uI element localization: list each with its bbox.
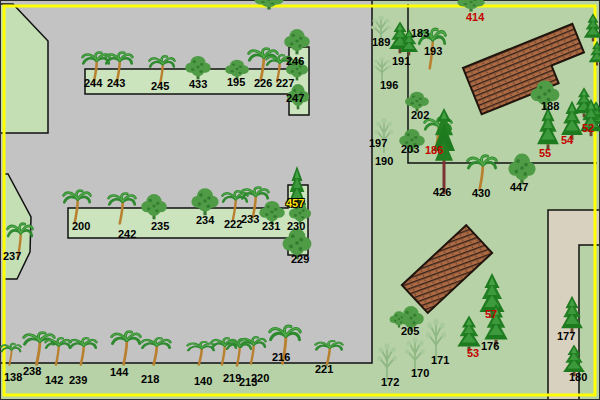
tree-number-label: 242 bbox=[118, 228, 136, 240]
tree-number-label: 447 bbox=[510, 181, 528, 193]
tree-number-label: 200 bbox=[72, 220, 90, 232]
tree-number-label: 231 bbox=[262, 220, 280, 232]
tree-number-label: 202 bbox=[411, 109, 429, 121]
tree-number-label: 457 bbox=[286, 197, 304, 209]
tree-number-label: 189 bbox=[372, 36, 390, 48]
tree-number-label: 191 bbox=[392, 55, 410, 67]
tree-number-label: 244 bbox=[84, 77, 102, 89]
map-canvas: 2442432454331952262272462472002422352342… bbox=[0, 0, 600, 400]
tree-number-label: 205 bbox=[401, 325, 419, 337]
tree-number-label: 53 bbox=[467, 347, 479, 359]
tree-number-label: 142 bbox=[45, 374, 63, 386]
tree-number-label: 230 bbox=[287, 220, 305, 232]
tree-number-label: 414 bbox=[466, 11, 484, 23]
tree-number-label: 229 bbox=[291, 253, 309, 265]
tree-number-label: 171 bbox=[431, 354, 449, 366]
tree-number-label: 227 bbox=[276, 77, 294, 89]
tree-number-label: 55 bbox=[539, 147, 551, 159]
tree-number-label: 196 bbox=[380, 79, 398, 91]
tree-number-label: 222 bbox=[224, 218, 242, 230]
tree-number-label: 183 bbox=[411, 27, 429, 39]
tree-number-label: 218 bbox=[141, 373, 159, 385]
label-layer: 2442432454331952262272462472002422352342… bbox=[0, 0, 600, 400]
tree-number-label: 186 bbox=[425, 144, 443, 156]
tree-number-label: 246 bbox=[286, 55, 304, 67]
tree-number-label: 220 bbox=[251, 372, 269, 384]
tree-number-label: 190 bbox=[375, 155, 393, 167]
tree-number-label: 221 bbox=[315, 363, 333, 375]
tree-number-label: 57 bbox=[485, 308, 497, 320]
tree-number-label: 430 bbox=[472, 187, 490, 199]
tree-number-label: 177 bbox=[557, 330, 575, 342]
tree-number-label: 172 bbox=[381, 376, 399, 388]
tree-number-label: 245 bbox=[151, 80, 169, 92]
tree-number-label: 180 bbox=[569, 371, 587, 383]
tree-number-label: 195 bbox=[227, 76, 245, 88]
tree-number-label: 234 bbox=[196, 214, 214, 226]
tree-number-label: 433 bbox=[189, 78, 207, 90]
tree-number-label: 237 bbox=[3, 250, 21, 262]
tree-number-label: 54 bbox=[561, 134, 573, 146]
tree-number-label: 197 bbox=[369, 137, 387, 149]
tree-number-label: 203 bbox=[401, 143, 419, 155]
tree-number-label: 144 bbox=[110, 366, 128, 378]
tree-number-label: 188 bbox=[541, 100, 559, 112]
tree-number-label: 247 bbox=[286, 92, 304, 104]
tree-number-label: 170 bbox=[411, 367, 429, 379]
tree-number-label: 426 bbox=[433, 186, 451, 198]
tree-number-label: 235 bbox=[151, 220, 169, 232]
tree-number-label: 176 bbox=[481, 340, 499, 352]
tree-number-label: 193 bbox=[424, 45, 442, 57]
tree-number-label: 238 bbox=[23, 365, 41, 377]
tree-number-label: 52 bbox=[582, 122, 594, 134]
tree-number-label: 140 bbox=[194, 375, 212, 387]
tree-number-label: 226 bbox=[254, 77, 272, 89]
tree-number-label: 243 bbox=[107, 77, 125, 89]
tree-number-label: 233 bbox=[241, 213, 259, 225]
tree-number-label: 138 bbox=[4, 371, 22, 383]
tree-number-label: 216 bbox=[272, 351, 290, 363]
tree-number-label: 239 bbox=[69, 374, 87, 386]
